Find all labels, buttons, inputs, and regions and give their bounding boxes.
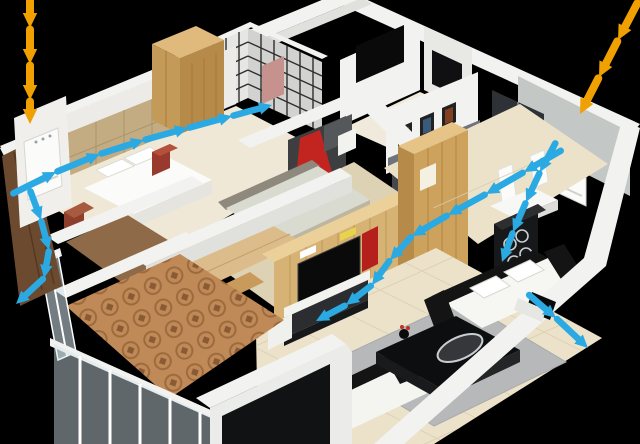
control-dot bbox=[49, 135, 52, 138]
control-dot bbox=[35, 141, 38, 144]
fresh-air-unit-left bbox=[14, 96, 72, 228]
control-dot bbox=[42, 138, 45, 141]
picture-art bbox=[445, 107, 453, 124]
flower bbox=[406, 326, 410, 330]
ventilation-diagram bbox=[0, 0, 640, 444]
airflow-arrow-shaft bbox=[41, 221, 45, 237]
flower bbox=[400, 325, 404, 329]
scene-svg bbox=[0, 0, 640, 444]
vase bbox=[399, 329, 409, 339]
picture-art bbox=[423, 117, 431, 134]
red-accent-panel bbox=[362, 226, 378, 272]
airflow-arrow-shaft bbox=[46, 251, 48, 265]
